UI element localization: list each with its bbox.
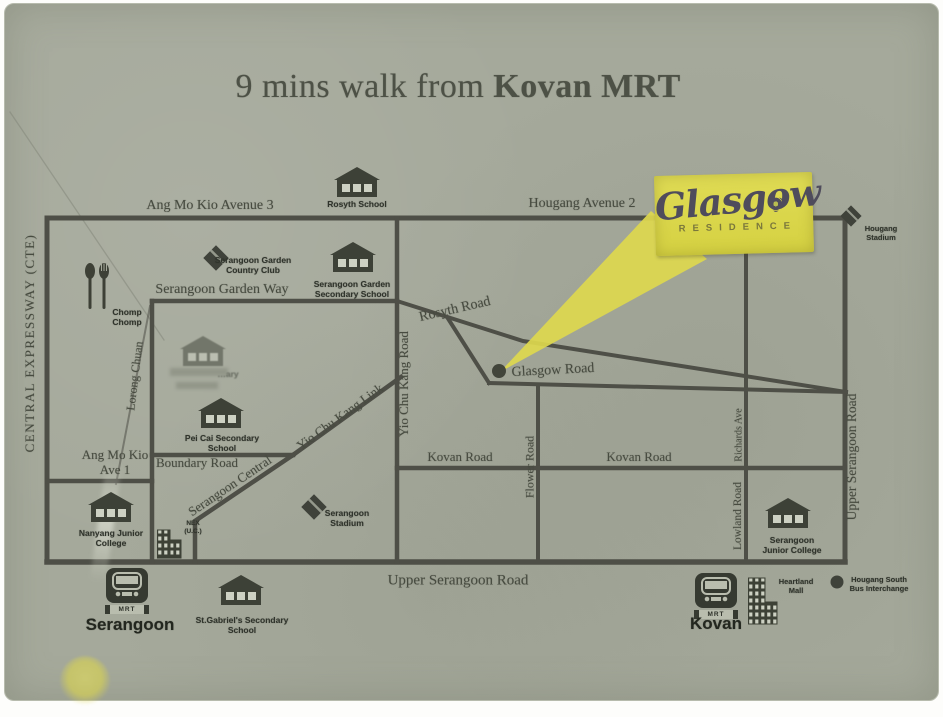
road-label-upper-serangoon-road-right: Upper Serangoon Road bbox=[844, 394, 860, 521]
title-highlight: Kovan MRT bbox=[493, 68, 680, 105]
map-scan: 9 mins walk from Kovan MRT Ang Mo Kio Av… bbox=[0, 0, 943, 717]
serangoon-junior-college-icon bbox=[765, 498, 811, 530]
serangoon-mrt-bar-label: MRT bbox=[105, 605, 149, 614]
glasgow-residence-logo: Glasgow RESIDENCE bbox=[654, 172, 814, 256]
chomp-chomp-label: Chomp Chomp bbox=[109, 307, 145, 327]
hougang-south-bus-interchange-icon bbox=[830, 575, 844, 589]
road-label-flower-road: Flower Road bbox=[523, 436, 538, 498]
pei-cai-secondary-school-label: Pei Cai Secondary School bbox=[182, 433, 262, 453]
chomp-chomp-utensils-icon bbox=[84, 262, 110, 318]
road-label-kovan-road-east: Kovan Road bbox=[606, 449, 671, 465]
road-label-serangoon-garden-way: Serangoon Garden Way bbox=[155, 282, 288, 298]
faded-school-icon bbox=[180, 336, 226, 368]
rosyth-school-label: Rosyth School bbox=[322, 199, 392, 209]
road-label-ang-mo-kio-ave-1: Ang Mo Kio Ave 1 bbox=[75, 448, 155, 478]
glasgow-logo-script: Glasgow bbox=[653, 175, 814, 227]
pei-cai-secondary-school-icon bbox=[198, 398, 244, 430]
st-gabriels-secondary-school-icon bbox=[218, 575, 264, 607]
rosyth-school-icon bbox=[334, 167, 380, 199]
road-label-richards-ave: Richards Ave bbox=[734, 408, 745, 461]
st-gabriels-secondary-school-label: St.Gabriel's Secondary School bbox=[194, 615, 290, 635]
serangoon-stadium-label: Serangoon Stadium bbox=[322, 508, 372, 528]
road-label-yio-chu-kang-road: Yio Chu Kang Road bbox=[396, 331, 412, 437]
kovan-mrt-name: Kovan bbox=[690, 614, 742, 634]
faded-text-smudge bbox=[176, 382, 218, 389]
serangoon-garden-secondary-school-icon bbox=[330, 242, 376, 274]
road-label-upper-serangoon-road-bottom: Upper Serangoon Road bbox=[388, 573, 529, 590]
hougang-south-bus-interchange-label: Hougang South Bus Interchange bbox=[847, 575, 911, 593]
road-label-lowland-road: Lowland Road bbox=[732, 482, 744, 550]
serangoon-mrt-name: Serangoon bbox=[86, 615, 175, 635]
road-label-central-expressway-cte: CENTRAL EXPRESSWAY (CTE) bbox=[22, 234, 38, 453]
road-label-ang-mo-kio-avenue-3: Ang Mo Kio Avenue 3 bbox=[146, 198, 273, 214]
nanyang-junior-college-icon bbox=[88, 492, 134, 524]
title-prefix: 9 mins walk from bbox=[235, 68, 493, 105]
road-label-kovan-road-west: Kovan Road bbox=[427, 449, 492, 465]
heartland-mall-label: Heartland Mall bbox=[772, 577, 820, 595]
serangoon-garden-secondary-school-label: Serangoon Garden Secondary School bbox=[308, 279, 396, 299]
glasgow-location-dot bbox=[492, 364, 506, 378]
serangoon-mrt-station-icon: MRT bbox=[105, 567, 149, 619]
scan-yellow-stamp bbox=[60, 656, 110, 706]
hougang-stadium-label: Hougang Stadium bbox=[858, 224, 904, 242]
road-label-boundary-road: Boundary Road bbox=[156, 455, 238, 471]
nex-label: NEX (U.C.) bbox=[178, 520, 208, 536]
serangoon-junior-college-label: Serangoon Junior College bbox=[759, 535, 825, 555]
nanyang-junior-college-label: Nanyang Junior College bbox=[78, 528, 144, 548]
page-title: 9 mins walk from Kovan MRT bbox=[235, 68, 680, 106]
road-label-hougang-avenue-2: Hougang Avenue 2 bbox=[528, 196, 635, 212]
faded-text-smudge bbox=[170, 368, 228, 376]
serangoon-garden-country-club-label: Serangoon Garden Country Club bbox=[212, 255, 294, 275]
